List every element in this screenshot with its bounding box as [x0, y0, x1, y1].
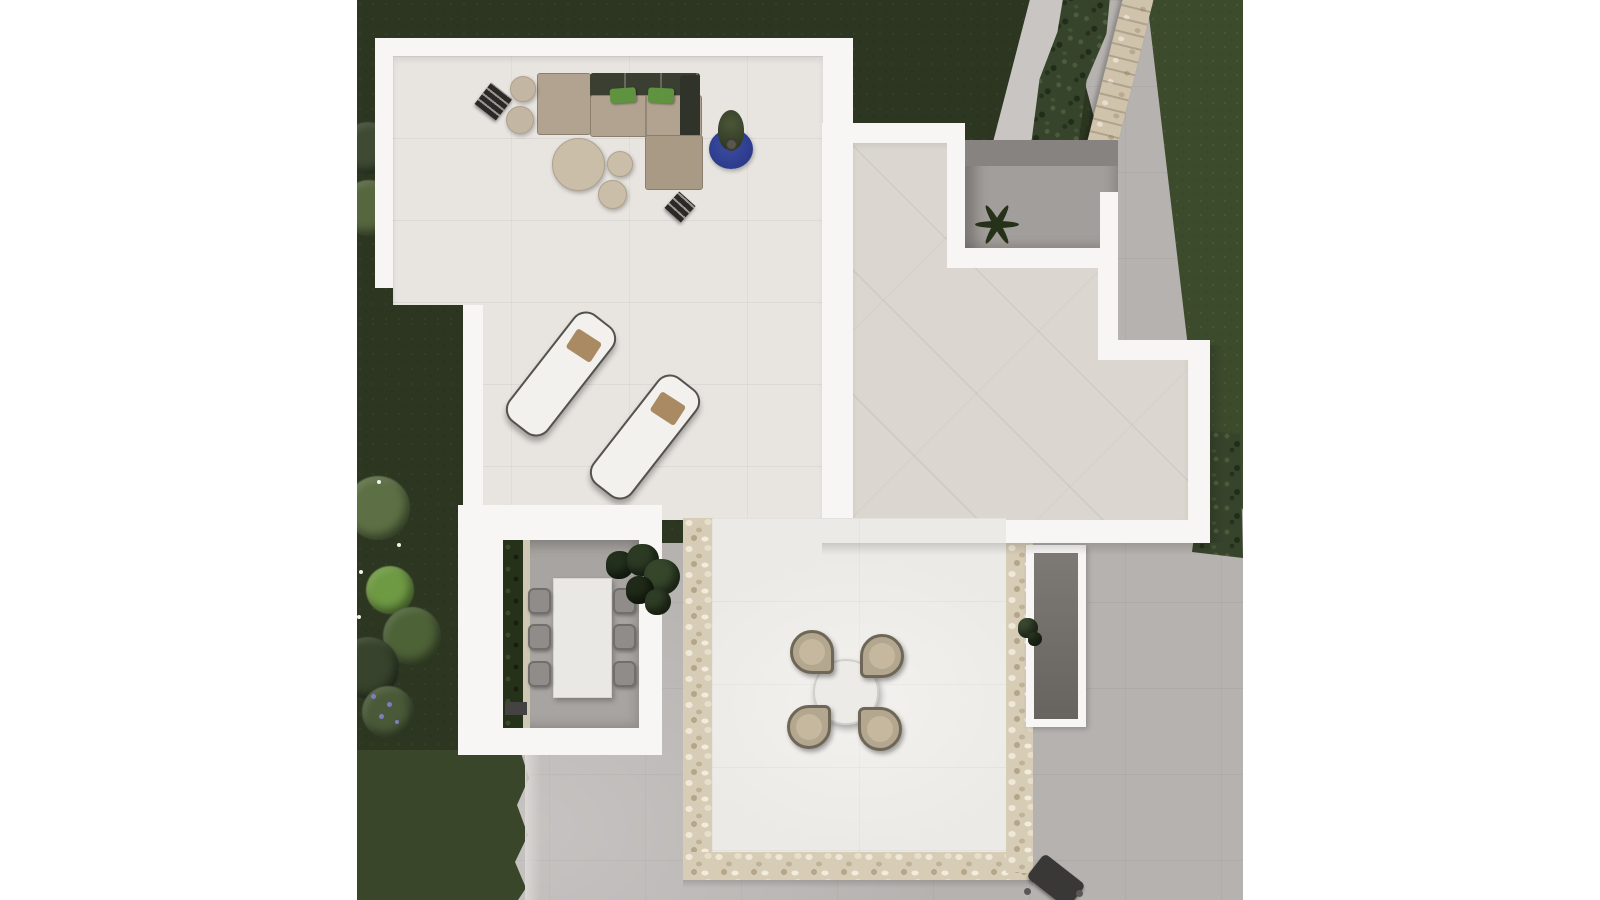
pebble-border-left: [683, 518, 712, 880]
green-pillow: [610, 87, 637, 104]
barbecue-wheel: [1076, 890, 1083, 897]
bush-flowering: [362, 686, 414, 738]
sofa-armrest: [680, 75, 700, 137]
terrace-shadow: [822, 543, 1210, 555]
patio-chair: [860, 634, 904, 678]
lawn-pavement-edge: [525, 750, 541, 900]
villa-aerial-scene: [357, 0, 1243, 900]
plant-foliage: [645, 589, 671, 615]
white-flower: [377, 480, 381, 484]
coffee-table-small: [607, 151, 633, 177]
lounger-pillow: [565, 328, 602, 363]
planting-bed: [503, 540, 523, 728]
patio-chair: [858, 707, 902, 751]
lawn-bottom-left: [357, 750, 529, 900]
chair-cushion: [796, 714, 822, 740]
pebble-border-bottom: [683, 852, 1033, 880]
sofa-chaise: [537, 73, 591, 135]
dining-chair: [528, 624, 551, 650]
patio-chair: [787, 705, 831, 749]
planter-plant: [1028, 632, 1042, 646]
courtyard-wall-shadow: [965, 140, 1118, 166]
chair-cushion: [869, 643, 895, 669]
terrace-shadow: [1210, 345, 1224, 543]
purple-flower: [395, 720, 399, 724]
white-flower: [357, 615, 361, 619]
patio-chair: [790, 630, 834, 674]
pouf: [506, 106, 534, 134]
plant-pot: [725, 138, 738, 151]
dining-chair: [613, 624, 636, 650]
dining-table: [553, 578, 612, 698]
chair-cushion: [867, 716, 893, 742]
inner-courtyard: [965, 140, 1118, 248]
sofa-return-section: [645, 135, 703, 190]
purple-flower: [387, 702, 392, 707]
purple-flower: [379, 714, 384, 719]
dining-chair: [528, 661, 551, 687]
white-flower: [359, 570, 363, 574]
courtyard-east-wall: [1100, 192, 1118, 250]
barbecue-wheel: [1024, 888, 1031, 895]
patio-shadow: [683, 880, 1033, 888]
render-canvas: [0, 0, 1600, 900]
dining-chair: [528, 588, 551, 614]
coffee-table-small: [598, 180, 627, 209]
pouf: [510, 76, 536, 102]
purple-flower: [371, 694, 376, 699]
green-pillow: [648, 87, 675, 103]
coffee-table-round: [552, 138, 605, 191]
white-flower: [397, 543, 401, 547]
chair-cushion: [799, 639, 825, 665]
doorway-shadow: [505, 702, 527, 715]
lounger-pillow: [649, 391, 686, 426]
palm-plant: [973, 202, 1021, 248]
dining-chair: [613, 661, 636, 687]
